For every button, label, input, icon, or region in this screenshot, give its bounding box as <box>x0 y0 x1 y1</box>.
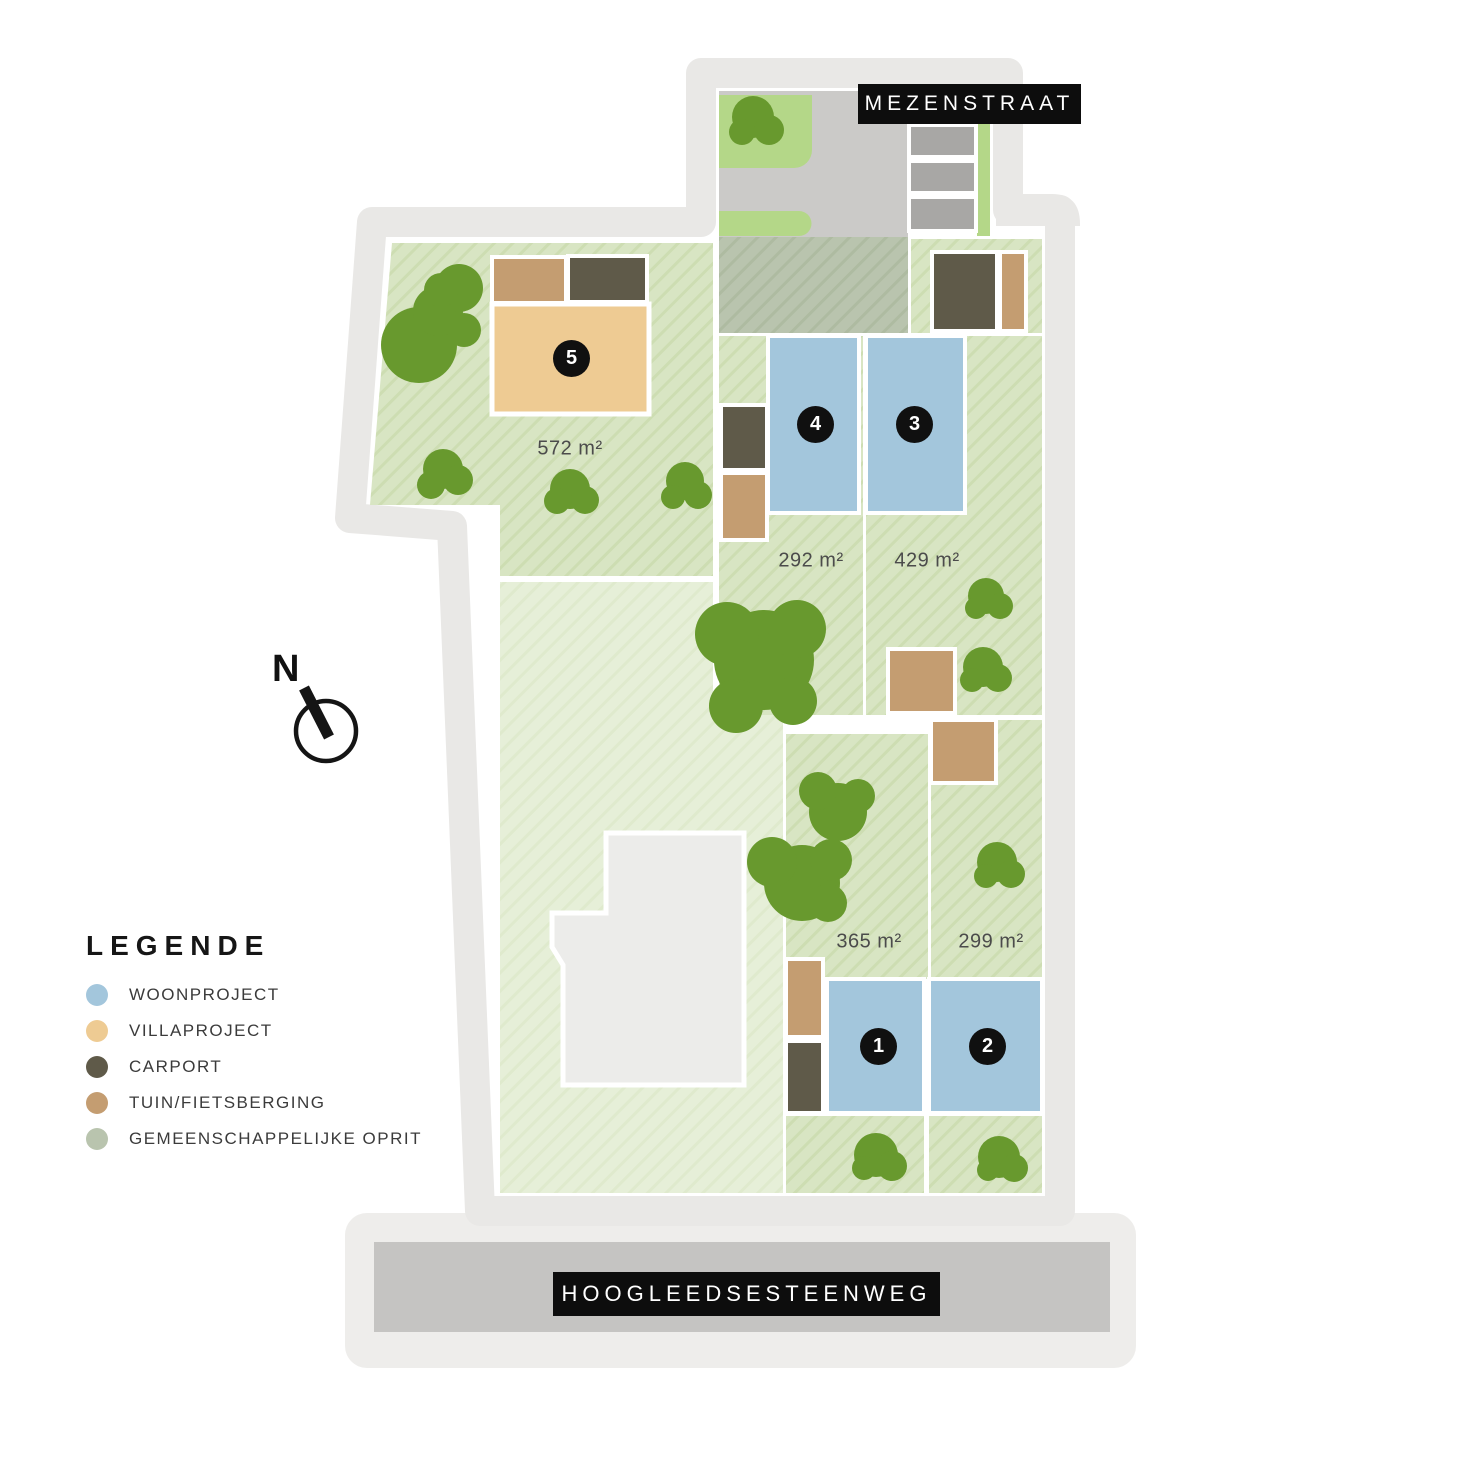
legend-item-tuin-fietsberging: TUIN/FIETSBERGING <box>86 1092 422 1114</box>
oprit-color-dot-icon <box>86 1128 108 1150</box>
legend-item-gemeenschappelijke-oprit: GEMEENSCHAPPELIJKE OPRIT <box>86 1128 422 1150</box>
street-label-hoogleedsesteenweg: HOOGLEEDSESTEENWEG <box>553 1272 940 1316</box>
lot-1-carport <box>786 1041 823 1113</box>
site-plan-drawing <box>0 0 1460 1460</box>
street-name: HOOGLEEDSESTEENWEG <box>562 1281 932 1307</box>
lot-3-garden-shed <box>888 649 955 713</box>
lot-5-badge: 5 <box>553 340 590 377</box>
street-name: MEZENSTRAAT <box>865 92 1075 116</box>
shared-driveway-oprit <box>719 237 908 333</box>
lot-5-garden-shed <box>492 257 566 303</box>
tuin-color-dot-icon <box>86 1092 108 1114</box>
lot-4-badge: 4 <box>797 406 834 443</box>
street-label-mezenstraat: MEZENSTRAAT <box>858 84 1081 124</box>
lot-2-area-label: 299 m² <box>958 931 1023 954</box>
legend-item-label: CARPORT <box>129 1057 222 1077</box>
top-right-shed <box>1000 252 1026 331</box>
compass-north-label: N <box>272 648 299 691</box>
lot-4-area-label: 292 m² <box>778 550 843 573</box>
legend-item-label: WOONPROJECT <box>129 985 280 1005</box>
top-right-carport <box>932 252 997 331</box>
lot-4-carport <box>721 405 767 470</box>
lot-3-badge: 3 <box>896 406 933 443</box>
carport-color-dot-icon <box>86 1056 108 1078</box>
parking-spaces <box>909 125 976 231</box>
lot-1-shed <box>786 959 823 1037</box>
legend-item-carport: CARPORT <box>86 1056 422 1078</box>
villaproject-color-dot-icon <box>86 1020 108 1042</box>
legend-item-label: VILLAPROJECT <box>129 1021 273 1041</box>
legend-item-label: GEMEENSCHAPPELIJKE OPRIT <box>129 1129 422 1149</box>
large-tree <box>695 600 826 733</box>
legend-item-label: TUIN/FIETSBERGING <box>129 1093 325 1113</box>
legend: LEGENDE WOONPROJECT VILLAPROJECT CARPORT… <box>86 930 422 1164</box>
green-strip <box>719 211 812 236</box>
legend-item-woonproject: WOONPROJECT <box>86 984 422 1006</box>
green-strip <box>977 122 990 236</box>
lot-1-badge: 1 <box>860 1028 897 1065</box>
lot-4-shed <box>721 473 767 540</box>
lot-1-area-label: 365 m² <box>836 931 901 954</box>
lot-5-area-label: 572 m² <box>537 438 602 461</box>
woonproject-color-dot-icon <box>86 984 108 1006</box>
lot-2-garden-shed <box>931 720 996 783</box>
legend-title: LEGENDE <box>86 930 422 962</box>
compass-icon <box>296 688 356 761</box>
lot-5-buildings <box>492 256 649 414</box>
site-boundary-corner <box>996 194 1080 226</box>
lot-2-badge: 2 <box>969 1028 1006 1065</box>
lot-5-carport <box>568 256 647 302</box>
legend-item-villaproject: VILLAPROJECT <box>86 1020 422 1042</box>
site-plan: MEZENSTRAAT HOOGLEEDSESTEENWEG 1 2 3 4 5… <box>0 0 1460 1460</box>
lot-3-area-label: 429 m² <box>894 550 959 573</box>
